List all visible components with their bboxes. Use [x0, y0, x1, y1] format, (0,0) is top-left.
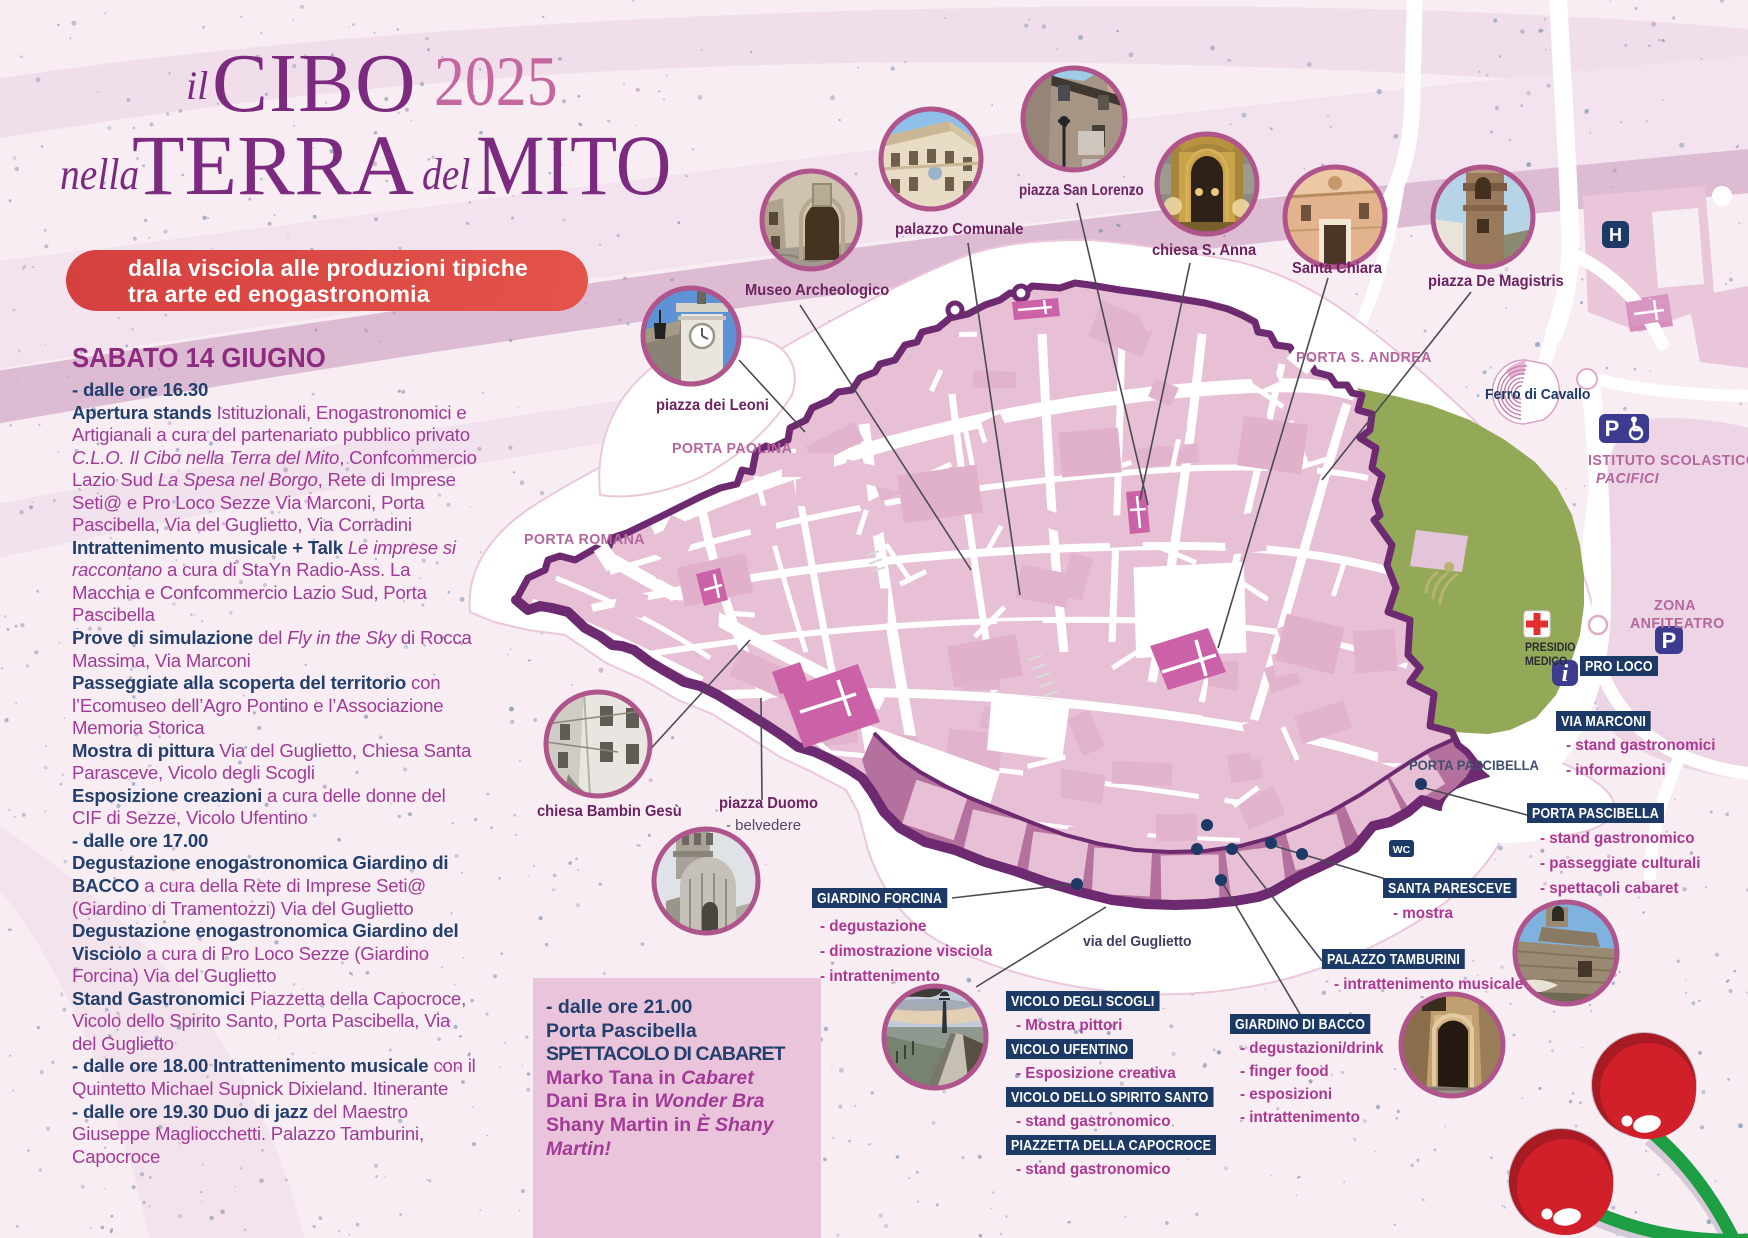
svg-text:WC: WC: [1393, 844, 1411, 856]
svg-text:P: P: [1605, 416, 1620, 441]
svg-text:H: H: [1609, 225, 1622, 245]
